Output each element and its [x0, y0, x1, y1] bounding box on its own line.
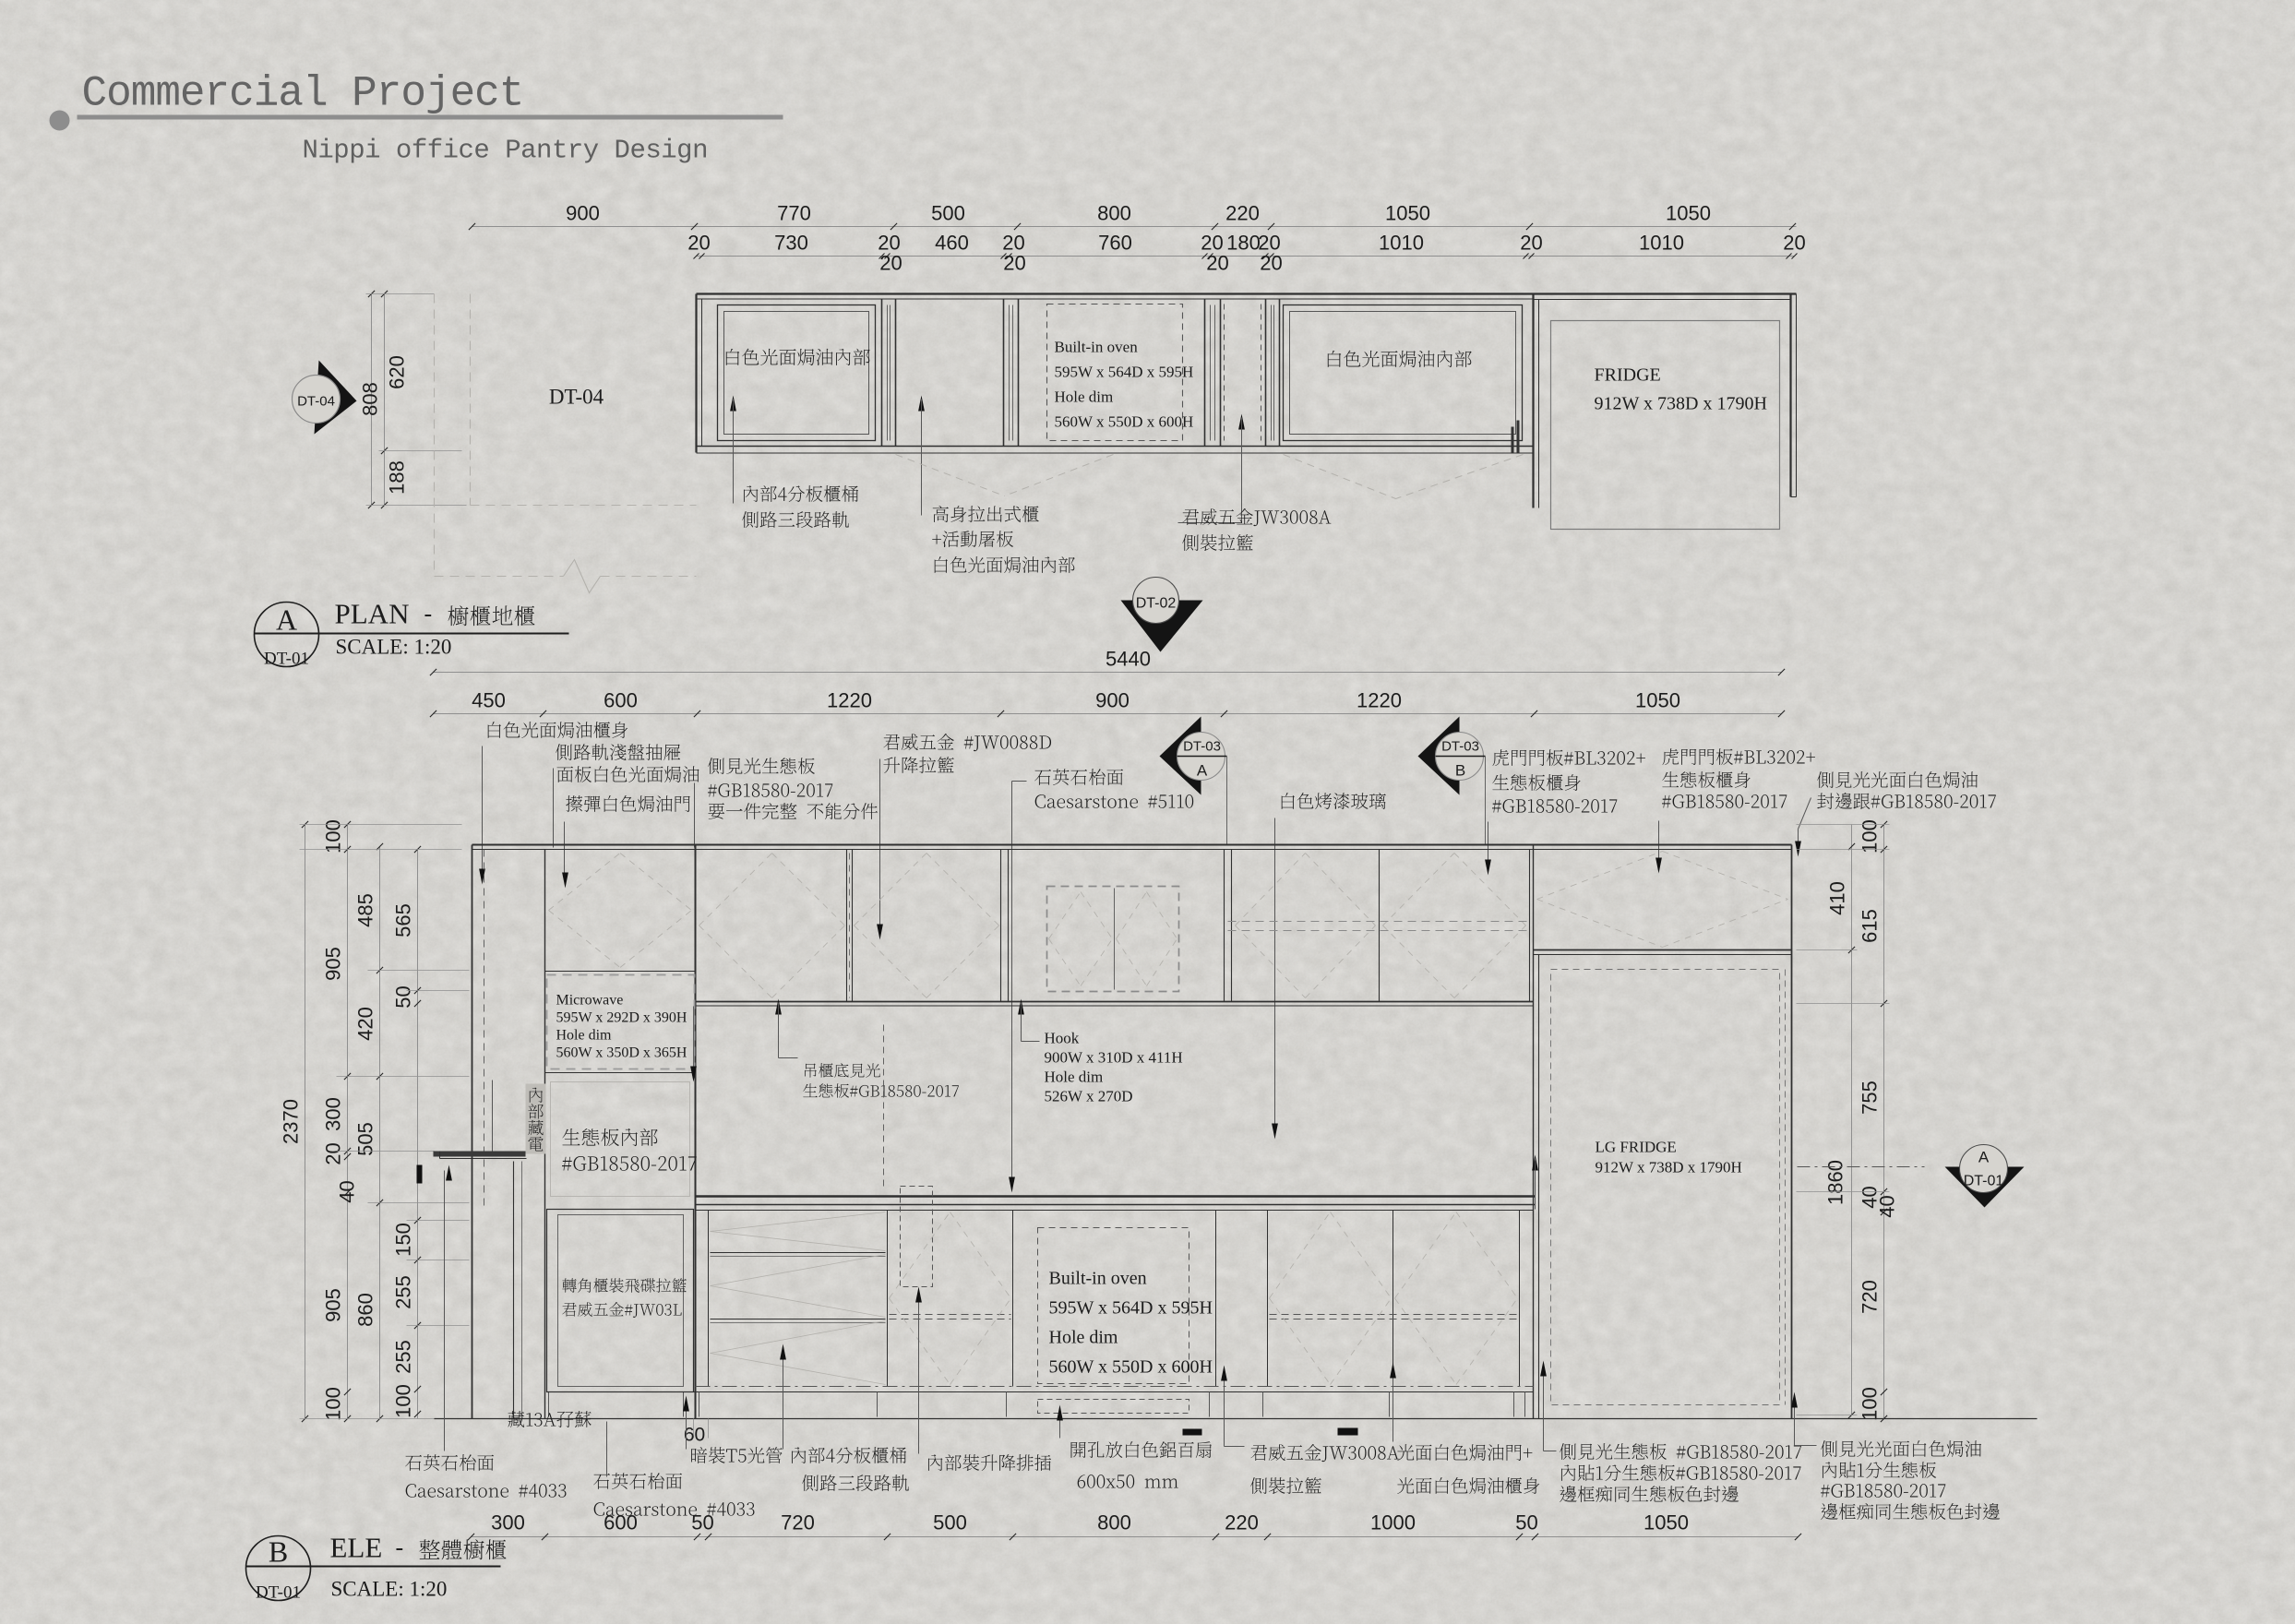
- svg-text:900W x 310D x 411H: 900W x 310D x 411H: [1045, 1049, 1183, 1067]
- svg-text:A: A: [1978, 1149, 1990, 1166]
- svg-text:808: 808: [359, 382, 382, 416]
- svg-text:2370: 2370: [280, 1099, 303, 1144]
- svg-text:860: 860: [354, 1293, 377, 1327]
- svg-text:220: 220: [1225, 202, 1260, 225]
- svg-text:500: 500: [931, 202, 965, 225]
- svg-text:60: 60: [684, 1425, 705, 1446]
- svg-text:5440: 5440: [1106, 648, 1151, 671]
- svg-text:800: 800: [1097, 202, 1131, 225]
- svg-text:PLAN: PLAN: [335, 598, 410, 630]
- svg-text:905: 905: [322, 1288, 345, 1322]
- svg-text:20: 20: [1260, 252, 1282, 275]
- svg-text:900: 900: [566, 202, 600, 225]
- svg-text:770: 770: [777, 202, 811, 225]
- svg-text:180: 180: [1226, 232, 1261, 255]
- svg-text:760: 760: [1098, 232, 1132, 255]
- svg-text:1050: 1050: [1635, 689, 1680, 712]
- svg-text:300: 300: [322, 1097, 345, 1131]
- svg-text:ELE: ELE: [330, 1532, 383, 1564]
- svg-text:460: 460: [935, 232, 969, 255]
- svg-text:500: 500: [933, 1511, 967, 1534]
- svg-text:1220: 1220: [827, 689, 872, 712]
- svg-text:DT-04: DT-04: [549, 386, 604, 409]
- svg-text:100: 100: [1859, 1387, 1882, 1421]
- svg-text:100: 100: [392, 1384, 415, 1418]
- svg-text:560W x 550D x 600H: 560W x 550D x 600H: [1055, 413, 1194, 431]
- svg-text:Hole dim: Hole dim: [556, 1028, 613, 1044]
- svg-text:50: 50: [691, 1511, 713, 1534]
- svg-text:-: -: [396, 1534, 404, 1561]
- svg-text:900: 900: [1095, 689, 1130, 712]
- svg-text:20: 20: [1206, 252, 1228, 275]
- svg-text:Hole dim: Hole dim: [1049, 1328, 1118, 1348]
- svg-text:20: 20: [1003, 252, 1025, 275]
- svg-text:615: 615: [1859, 909, 1882, 943]
- svg-text:DT-04: DT-04: [297, 394, 335, 410]
- svg-text:Hole dim: Hole dim: [1055, 388, 1114, 406]
- svg-text:912W x 738D x 1790H: 912W x 738D x 1790H: [1596, 1159, 1742, 1176]
- svg-text:DT-02: DT-02: [1136, 596, 1177, 612]
- svg-text:450: 450: [472, 689, 506, 712]
- svg-text:LG FRIDGE: LG FRIDGE: [1596, 1139, 1677, 1156]
- svg-text:Commercial Project: Commercial Project: [82, 70, 524, 118]
- svg-text:SCALE: 1:20: SCALE: 1:20: [331, 1578, 448, 1601]
- svg-text:912W x 738D x 1790H: 912W x 738D x 1790H: [1595, 394, 1767, 414]
- svg-text:40: 40: [336, 1180, 359, 1202]
- svg-text:1050: 1050: [1644, 1511, 1689, 1534]
- svg-text:20: 20: [687, 232, 710, 255]
- svg-text:20: 20: [1520, 232, 1542, 255]
- svg-text:255: 255: [392, 1275, 415, 1309]
- svg-text:905: 905: [322, 947, 345, 981]
- svg-text:300: 300: [491, 1511, 525, 1534]
- svg-text:Built-in oven: Built-in oven: [1049, 1269, 1147, 1289]
- svg-text:410: 410: [1826, 881, 1849, 915]
- svg-text:DT-01: DT-01: [264, 650, 309, 669]
- svg-text:FRIDGE: FRIDGE: [1595, 365, 1661, 386]
- svg-text:720: 720: [1859, 1280, 1882, 1314]
- svg-text:600: 600: [604, 689, 638, 712]
- svg-text:Nippi office Pantry Design: Nippi office Pantry Design: [303, 136, 708, 166]
- svg-text:20: 20: [879, 252, 902, 275]
- svg-text:150: 150: [392, 1223, 415, 1257]
- svg-text:485: 485: [354, 893, 377, 927]
- svg-text:1050: 1050: [1666, 202, 1711, 225]
- svg-text:DT-03: DT-03: [1183, 739, 1221, 755]
- svg-text:SCALE: 1:20: SCALE: 1:20: [336, 636, 452, 659]
- svg-text:A: A: [1197, 762, 1208, 780]
- svg-text:50: 50: [1515, 1511, 1537, 1534]
- svg-text:720: 720: [781, 1511, 815, 1534]
- svg-text:1010: 1010: [1639, 232, 1684, 255]
- svg-text:40: 40: [1876, 1195, 1899, 1217]
- svg-text:560W x 550D x 600H: 560W x 550D x 600H: [1049, 1357, 1213, 1378]
- svg-text:Built-in oven: Built-in oven: [1055, 339, 1139, 356]
- svg-text:600: 600: [604, 1511, 638, 1534]
- svg-text:220: 220: [1225, 1511, 1259, 1534]
- svg-text:Microwave: Microwave: [556, 993, 624, 1009]
- svg-text:Hook: Hook: [1045, 1030, 1080, 1047]
- svg-text:565: 565: [392, 903, 415, 937]
- svg-text:755: 755: [1859, 1081, 1882, 1115]
- svg-text:255: 255: [392, 1340, 415, 1374]
- svg-text:DT-01: DT-01: [1964, 1174, 2004, 1189]
- svg-text:188: 188: [386, 460, 409, 495]
- svg-text:595W x 564D x 595H: 595W x 564D x 595H: [1055, 364, 1194, 381]
- svg-text:1010: 1010: [1379, 232, 1424, 255]
- svg-text:526W x 270D: 526W x 270D: [1045, 1088, 1133, 1105]
- svg-text:730: 730: [774, 232, 808, 255]
- svg-text:620: 620: [386, 355, 409, 389]
- svg-text:420: 420: [354, 1007, 377, 1041]
- svg-text:20: 20: [1783, 232, 1805, 255]
- svg-text:A: A: [276, 603, 297, 637]
- svg-text:560W x 350D x 365H: 560W x 350D x 365H: [556, 1045, 687, 1061]
- svg-text:B: B: [1455, 762, 1465, 780]
- svg-text:595W x 564D x 595H: 595W x 564D x 595H: [1049, 1298, 1213, 1319]
- svg-text:Hole dim: Hole dim: [1045, 1069, 1104, 1086]
- svg-text:20: 20: [322, 1142, 345, 1164]
- svg-text:800: 800: [1097, 1511, 1131, 1534]
- svg-text:1050: 1050: [1385, 202, 1430, 225]
- svg-text:1000: 1000: [1370, 1511, 1416, 1534]
- svg-text:595W x 292D x 390H: 595W x 292D x 390H: [556, 1010, 687, 1026]
- svg-text:DT-01: DT-01: [256, 1583, 301, 1603]
- svg-text:1220: 1220: [1357, 689, 1402, 712]
- svg-text:DT-03: DT-03: [1441, 739, 1479, 755]
- svg-text:-: -: [424, 601, 433, 627]
- svg-text:B: B: [269, 1535, 288, 1569]
- svg-text:100: 100: [322, 1387, 345, 1421]
- svg-text:50: 50: [392, 985, 415, 1008]
